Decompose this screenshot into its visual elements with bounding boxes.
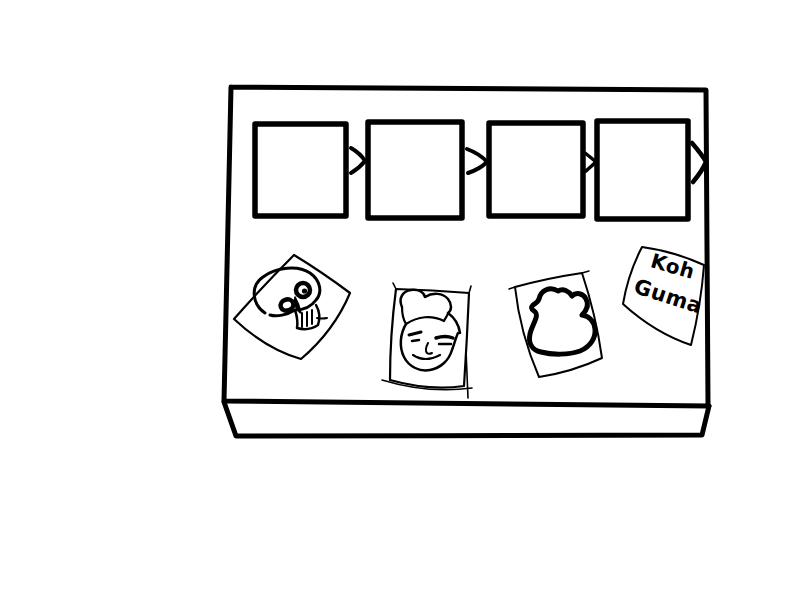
sequence-slot-3[interactable] [489, 123, 583, 216]
chevron-right-icon-2 [467, 149, 487, 173]
chevron-right-icon-1 [351, 148, 365, 173]
duck-card[interactable] [509, 271, 602, 377]
face-icon [401, 290, 460, 371]
text-card[interactable]: Koh Guma [623, 247, 705, 345]
sequence-slot-1[interactable] [255, 124, 346, 216]
face-card[interactable] [382, 283, 472, 398]
rubber-duck-icon [529, 289, 595, 354]
sketch-canvas: Koh Guma [0, 0, 800, 600]
skull-icon [254, 268, 327, 329]
hand-drawn-sketch: Koh Guma [0, 0, 800, 600]
text-card-line-2: Guma [631, 274, 705, 319]
sequence-slots [255, 121, 706, 219]
skull-card[interactable] [234, 255, 350, 359]
sequence-slot-4[interactable] [597, 121, 688, 219]
sequence-slot-2[interactable] [368, 122, 462, 218]
